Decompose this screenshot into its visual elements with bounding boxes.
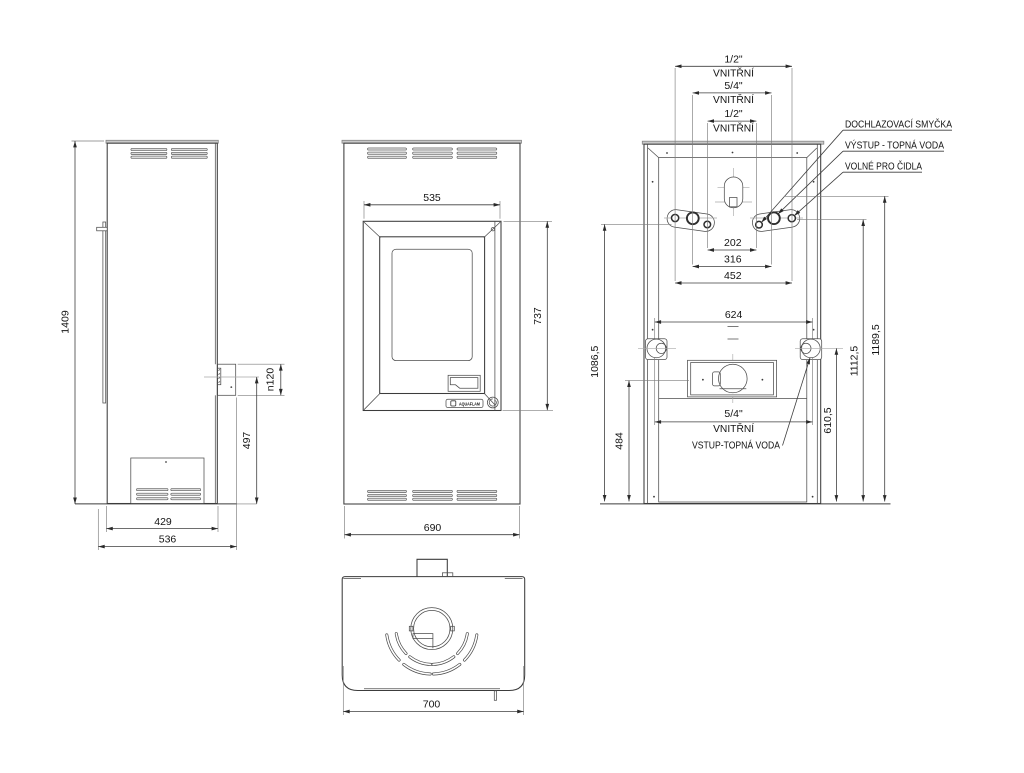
svg-text:1409: 1409 [60, 310, 72, 334]
svg-text:n120: n120 [265, 368, 277, 392]
svg-text:5/4": 5/4" [724, 408, 743, 420]
svg-text:700: 700 [423, 699, 441, 711]
svg-text:VNITŘNÍ: VNITŘNÍ [713, 121, 754, 134]
svg-text:497: 497 [241, 432, 253, 450]
svg-text:624: 624 [725, 309, 743, 321]
svg-text:VSTUP-TOPNÁ VODA: VSTUP-TOPNÁ VODA [692, 438, 780, 451]
svg-text:536: 536 [159, 534, 177, 546]
svg-text:484: 484 [614, 432, 626, 450]
svg-text:AQUAFLAM: AQUAFLAM [459, 402, 480, 407]
svg-text:1112,5: 1112,5 [849, 346, 861, 377]
svg-text:429: 429 [154, 516, 172, 528]
svg-text:535: 535 [423, 192, 441, 204]
svg-text:1189,5: 1189,5 [870, 324, 882, 355]
svg-text:VNITŘNÍ: VNITŘNÍ [713, 93, 754, 106]
svg-text:DOCHLAZOVACÍ SMYČKA: DOCHLAZOVACÍ SMYČKA [845, 117, 952, 130]
svg-text:737: 737 [532, 307, 544, 325]
svg-text:1/2": 1/2" [724, 108, 743, 120]
svg-text:VOLNÉ PRO ČIDLA: VOLNÉ PRO ČIDLA [845, 159, 922, 172]
svg-text:690: 690 [424, 522, 442, 534]
svg-text:VNITŘNÍ: VNITŘNÍ [713, 422, 754, 435]
svg-text:452: 452 [724, 270, 742, 282]
svg-text:316: 316 [724, 254, 742, 266]
svg-text:610,5: 610,5 [822, 407, 834, 433]
svg-text:VÝSTUP - TOPNÁ VODA: VÝSTUP - TOPNÁ VODA [845, 138, 944, 151]
svg-text:VNITŘNÍ: VNITŘNÍ [713, 67, 754, 80]
svg-text:1/2": 1/2" [724, 53, 743, 65]
svg-text:1086,5: 1086,5 [589, 345, 601, 377]
svg-text:202: 202 [724, 237, 742, 249]
svg-text:5/4": 5/4" [724, 80, 743, 92]
